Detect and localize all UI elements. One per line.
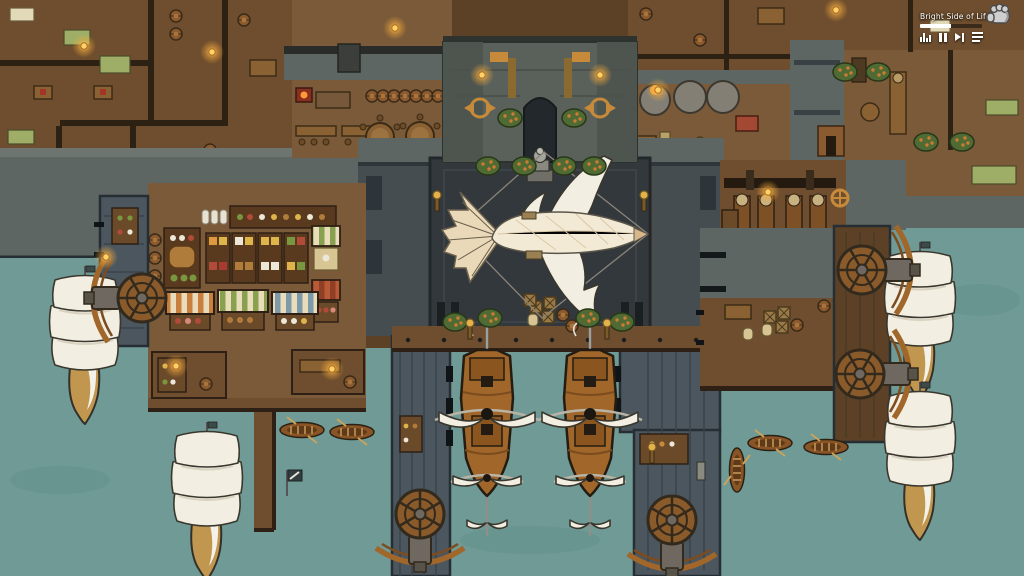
building-tavern[interactable] <box>284 0 452 160</box>
music-controls <box>920 32 1006 42</box>
basin-boardwalk <box>392 326 722 352</box>
lantern-glow <box>72 34 96 58</box>
produce-shelf[interactable] <box>258 233 282 283</box>
hand-cursor-icon <box>982 0 1018 30</box>
bush <box>576 309 600 327</box>
lantern-glow <box>383 16 407 40</box>
equalizer-icon <box>920 32 931 42</box>
bush <box>476 157 500 175</box>
pause-button[interactable] <box>939 33 947 42</box>
bush <box>562 109 586 127</box>
produce-shelf[interactable] <box>284 233 308 283</box>
market-stall-orange[interactable] <box>166 292 214 330</box>
bush <box>478 309 502 327</box>
bush <box>552 157 576 175</box>
bush <box>866 63 890 81</box>
gold-wheel-ornament <box>832 190 848 206</box>
lantern-glow <box>756 180 780 204</box>
bush <box>950 133 974 151</box>
lantern-glow <box>94 245 118 269</box>
music-progress-fill <box>920 24 951 28</box>
lantern-glow <box>200 40 224 64</box>
next-track-button[interactable] <box>955 33 964 42</box>
bush <box>610 313 634 331</box>
playlist-button[interactable] <box>972 32 983 41</box>
bush <box>498 109 522 127</box>
market-stall-green2[interactable] <box>218 290 268 330</box>
gatehouse[interactable] <box>443 36 637 162</box>
bush <box>914 133 938 151</box>
market-stall-blue[interactable] <box>272 292 318 330</box>
lantern-glow <box>164 354 188 378</box>
lantern-glow <box>588 63 612 87</box>
produce-shelf[interactable] <box>206 233 230 283</box>
lantern-glow <box>320 357 344 381</box>
game-viewport[interactable]: Bright Side of Life <box>0 0 1024 576</box>
music-progress-track[interactable] <box>920 24 982 28</box>
bush <box>833 63 857 81</box>
game-world-canvas[interactable] <box>0 0 1024 576</box>
produce-shelf[interactable] <box>232 233 256 283</box>
lantern-glow <box>470 63 494 87</box>
bush <box>512 157 536 175</box>
lantern-glow <box>646 78 670 102</box>
bush <box>582 157 606 175</box>
bush <box>443 313 467 331</box>
market-stall-green[interactable] <box>312 226 340 270</box>
